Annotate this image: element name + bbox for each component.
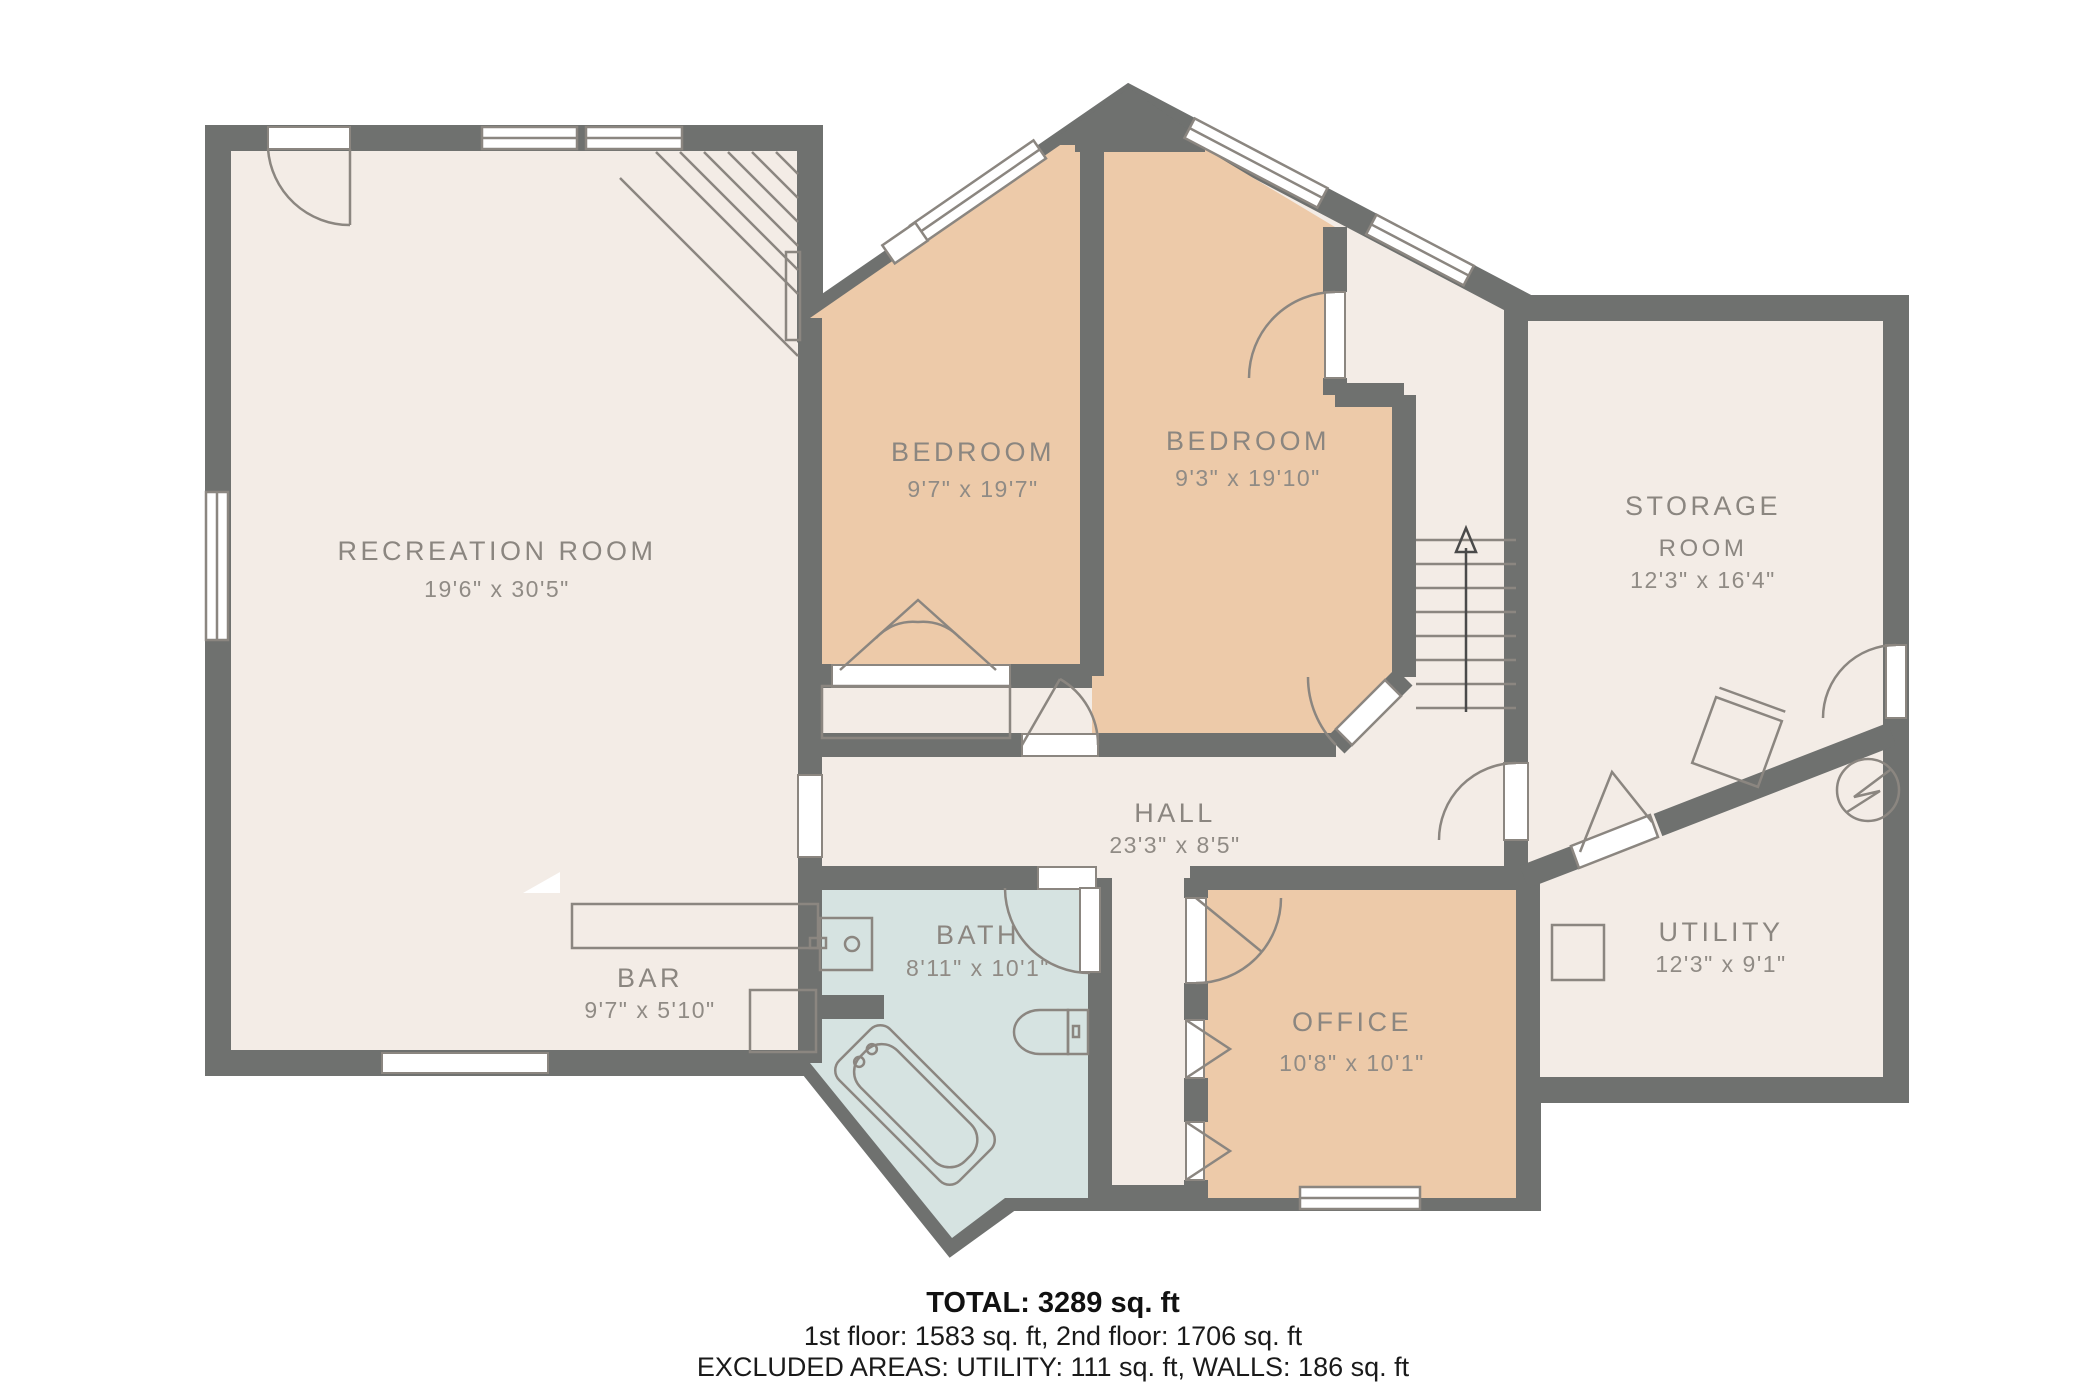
excluded-areas-text: EXCLUDED AREAS: UTILITY: 111 sq. ft, WAL…: [697, 1352, 1410, 1382]
recreation-room-dims: 19'6" x 30'5": [424, 576, 570, 602]
bedroom-right-dims: 9'3" x 19'10": [1175, 465, 1321, 491]
utility-label: UTILITY: [1658, 917, 1783, 947]
bedroom-left-label: BEDROOM: [891, 437, 1055, 467]
door-rec-hall: [798, 775, 822, 857]
window: [586, 127, 682, 149]
bath-label: BATH: [936, 920, 1020, 950]
room-office-area: [1196, 878, 1528, 1198]
window: [482, 127, 577, 149]
area-summary: TOTAL: 3289 sq. ft 1st floor: 1583 sq. f…: [697, 1287, 1410, 1382]
utility-dims: 12'3" x 9'1": [1655, 951, 1786, 977]
hall-dims: 23'3" x 8'5": [1109, 832, 1240, 858]
office-label: OFFICE: [1292, 1007, 1412, 1037]
storage-room-label: STORAGE: [1625, 491, 1781, 521]
office-dims: 10'8" x 10'1": [1279, 1050, 1425, 1076]
window: [1300, 1187, 1420, 1209]
floor-areas-text: 1st floor: 1583 sq. ft, 2nd floor: 1706 …: [804, 1321, 1303, 1351]
window: [206, 492, 228, 640]
bedroom-left-dims: 9'7" x 19'7": [907, 476, 1038, 502]
bar-dims: 9'7" x 5'10": [584, 997, 715, 1023]
total-area-text: TOTAL: 3289 sq. ft: [926, 1287, 1180, 1319]
recreation-room-label: RECREATION ROOM: [337, 536, 656, 566]
bar-label: BAR: [617, 963, 683, 993]
storage-room-dims: 12'3" x 16'4": [1630, 567, 1776, 593]
floor-plan-page: RECREATION ROOM 19'6" x 30'5" BEDROOM 9'…: [0, 0, 2080, 1386]
bedroom-right-label: BEDROOM: [1166, 426, 1330, 456]
storage-room-label2: ROOM: [1659, 535, 1748, 562]
bath-dims: 8'11" x 10'1": [906, 955, 1050, 981]
hall-label: HALL: [1134, 798, 1216, 828]
patio-opening: [382, 1053, 548, 1073]
floor-plan: RECREATION ROOM 19'6" x 30'5" BEDROOM 9'…: [0, 0, 2080, 1386]
